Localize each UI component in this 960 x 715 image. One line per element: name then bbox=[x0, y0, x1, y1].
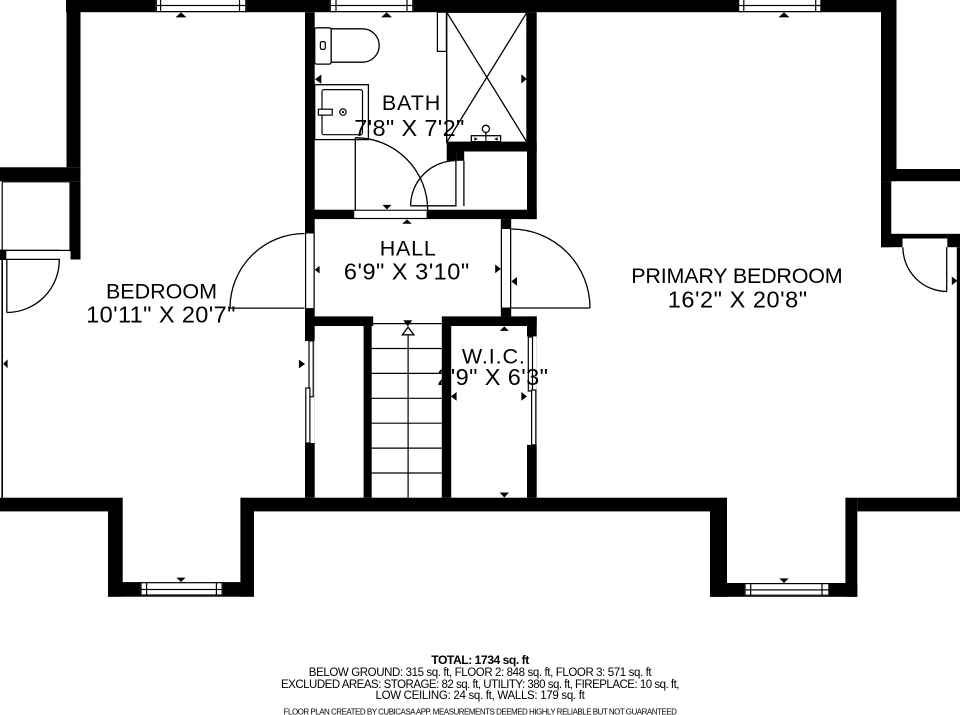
svg-text:2'9" X 6'3": 2'9" X 6'3" bbox=[437, 364, 548, 390]
svg-text:BATH: BATH bbox=[382, 91, 441, 115]
svg-text:BELOW GROUND: 315 sq. ft, FLOO: BELOW GROUND: 315 sq. ft, FLOOR 2: 848 s… bbox=[309, 667, 653, 679]
svg-text:6'9" X 3'10": 6'9" X 3'10" bbox=[344, 259, 470, 285]
svg-text:TOTAL: 1734 sq. ft: TOTAL: 1734 sq. ft bbox=[431, 653, 529, 667]
svg-text:PRIMARY BEDROOM: PRIMARY BEDROOM bbox=[631, 264, 842, 288]
svg-text:BEDROOM: BEDROOM bbox=[106, 280, 217, 304]
svg-text:FLOOR PLAN CREATED BY CUBICASA: FLOOR PLAN CREATED BY CUBICASA APP. MEAS… bbox=[284, 707, 677, 715]
svg-text:7'8" X 7'2": 7'8" X 7'2" bbox=[354, 115, 465, 141]
svg-text:16'2" X 20'8": 16'2" X 20'8" bbox=[668, 287, 808, 313]
svg-text:10'11" X 20'7": 10'11" X 20'7" bbox=[86, 302, 236, 328]
svg-text:HALL: HALL bbox=[380, 236, 437, 260]
svg-text:LOW CEILING: 24 sq. ft, WALLS:: LOW CEILING: 24 sq. ft, WALLS: 179 sq. f… bbox=[375, 690, 585, 702]
